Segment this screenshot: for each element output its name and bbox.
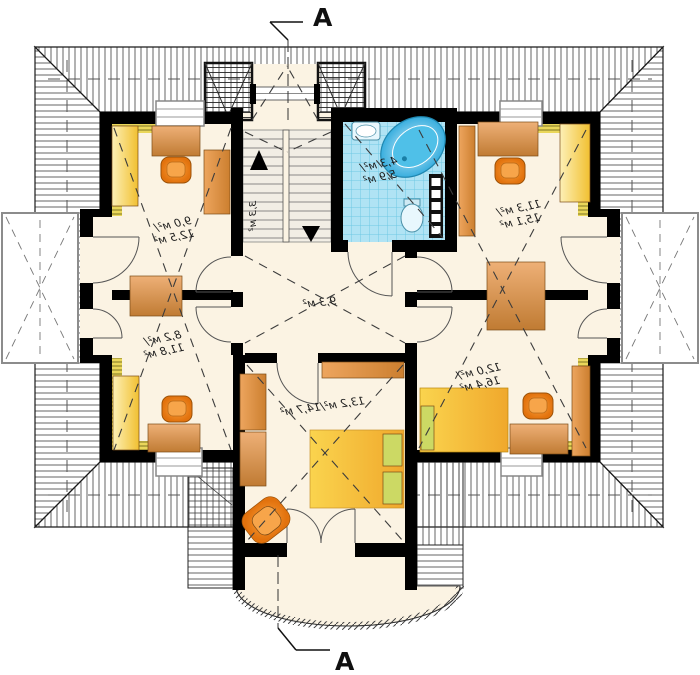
wardrobe-top-right bbox=[560, 124, 590, 202]
chair-mid-left bbox=[162, 396, 192, 422]
toilet bbox=[401, 199, 423, 232]
floor-plan-drawing: A A 9,0 м²/ 12,5 м² 8,2 м²/ 11,8 м² 11,3… bbox=[0, 0, 700, 675]
balcony-floor bbox=[236, 586, 460, 626]
stair-stringer bbox=[283, 130, 289, 242]
desk-mid-left bbox=[148, 424, 200, 452]
wardrobe-top-left bbox=[112, 126, 138, 206]
desk-top-right bbox=[478, 122, 538, 156]
pillow-bedroom-2 bbox=[383, 472, 402, 504]
svg-text:3,3 м²: 3,3 м² bbox=[248, 201, 259, 232]
window-top-left bbox=[156, 101, 204, 126]
attic-floor-plan: A A 9,0 м²/ 12,5 м² 8,2 м²/ 11,8 м² 11,3… bbox=[0, 0, 700, 675]
radiator bbox=[429, 174, 443, 238]
desk-top-left bbox=[152, 126, 200, 156]
chair-top-right bbox=[495, 158, 525, 184]
dresser-right bbox=[487, 262, 545, 330]
wardrobe-mid-left bbox=[113, 376, 139, 450]
roof-strip-right bbox=[417, 460, 463, 545]
chair-bottom-right bbox=[523, 393, 553, 419]
wardrobe-bedroom bbox=[322, 362, 404, 378]
chair-top-left bbox=[161, 157, 191, 183]
label-staircase: 3,3 м² bbox=[248, 201, 259, 232]
chimney-left bbox=[205, 63, 252, 120]
shelf-top-right bbox=[459, 126, 475, 236]
dresser-left bbox=[130, 276, 182, 316]
pillow-bedroom-1 bbox=[383, 434, 402, 466]
cabinet-bedroom-lower bbox=[240, 432, 266, 486]
floor-balcony-neck bbox=[245, 552, 405, 590]
pillow-bottom-right bbox=[421, 406, 434, 450]
roof-strip-left bbox=[188, 468, 233, 588]
roof-strip-right-lower bbox=[417, 545, 463, 588]
section-letter-bottom: A bbox=[335, 647, 355, 675]
shelf-bottom-right bbox=[572, 366, 590, 456]
section-letter-top: A bbox=[313, 3, 333, 32]
cabinet-top-left bbox=[204, 150, 230, 214]
desk-bottom-right bbox=[510, 424, 568, 454]
